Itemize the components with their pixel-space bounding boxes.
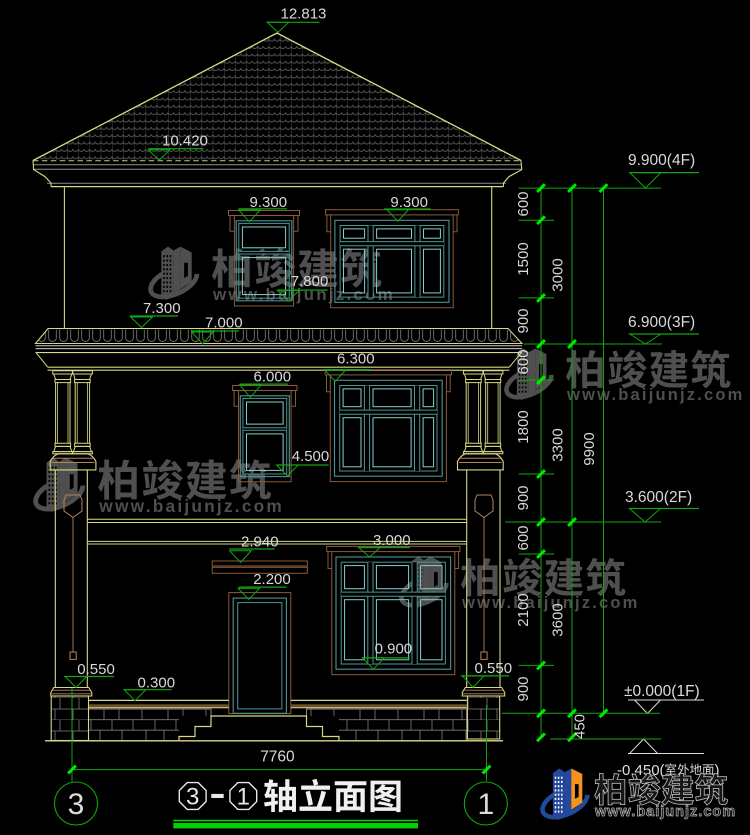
- svg-text:9.300: 9.300: [390, 194, 428, 211]
- svg-text:12.813: 12.813: [281, 6, 327, 23]
- svg-text:9900: 9900: [581, 432, 598, 465]
- svg-text:0.550: 0.550: [475, 660, 513, 677]
- svg-text:3.000: 3.000: [373, 532, 411, 549]
- svg-text:2.940: 2.940: [241, 534, 279, 551]
- svg-text:1: 1: [477, 788, 494, 821]
- svg-text:9.900(4F): 9.900(4F): [628, 152, 695, 169]
- svg-text:0.300: 0.300: [138, 675, 176, 692]
- svg-text:10.420: 10.420: [162, 133, 208, 150]
- svg-text:2100: 2100: [515, 593, 532, 626]
- svg-text:900: 900: [515, 308, 532, 333]
- svg-text:0.900: 0.900: [375, 640, 413, 657]
- svg-text:1800: 1800: [515, 410, 532, 443]
- svg-text:900: 900: [515, 485, 532, 510]
- svg-text:www.baijunjz.com: www.baijunjz.com: [98, 496, 284, 516]
- svg-text:6.000: 6.000: [254, 369, 292, 386]
- svg-text:6.300: 6.300: [337, 351, 375, 368]
- svg-text:±0.000(1F): ±0.000(1F): [624, 683, 700, 700]
- svg-text:600: 600: [515, 191, 532, 216]
- svg-text:www.baijunjz.com: www.baijunjz.com: [594, 804, 736, 820]
- svg-text:6.900(3F): 6.900(3F): [628, 314, 695, 331]
- svg-text:7.300: 7.300: [143, 300, 181, 317]
- svg-text:600: 600: [515, 525, 532, 550]
- svg-text:1: 1: [237, 784, 250, 811]
- svg-text:3000: 3000: [550, 258, 567, 291]
- svg-text:www.baijunjz.com: www.baijunjz.com: [566, 386, 744, 404]
- svg-text:4.500: 4.500: [292, 448, 330, 465]
- svg-text:0.550: 0.550: [77, 661, 115, 678]
- svg-text:-0.450(: -0.450(: [617, 762, 665, 779]
- svg-text:7.000: 7.000: [205, 315, 243, 332]
- svg-text:3600: 3600: [550, 603, 567, 636]
- svg-text:900: 900: [515, 676, 532, 701]
- svg-text:450: 450: [572, 714, 589, 739]
- svg-text:3: 3: [68, 788, 85, 821]
- svg-text:3.600(2F): 3.600(2F): [625, 489, 692, 506]
- svg-text:2.200: 2.200: [253, 571, 291, 588]
- svg-text:3300: 3300: [550, 428, 567, 461]
- svg-text:3: 3: [186, 784, 199, 811]
- svg-text:600: 600: [515, 349, 532, 374]
- svg-text:7760: 7760: [260, 749, 295, 766]
- svg-text:1500: 1500: [515, 242, 532, 275]
- svg-text:7.800: 7.800: [291, 273, 329, 290]
